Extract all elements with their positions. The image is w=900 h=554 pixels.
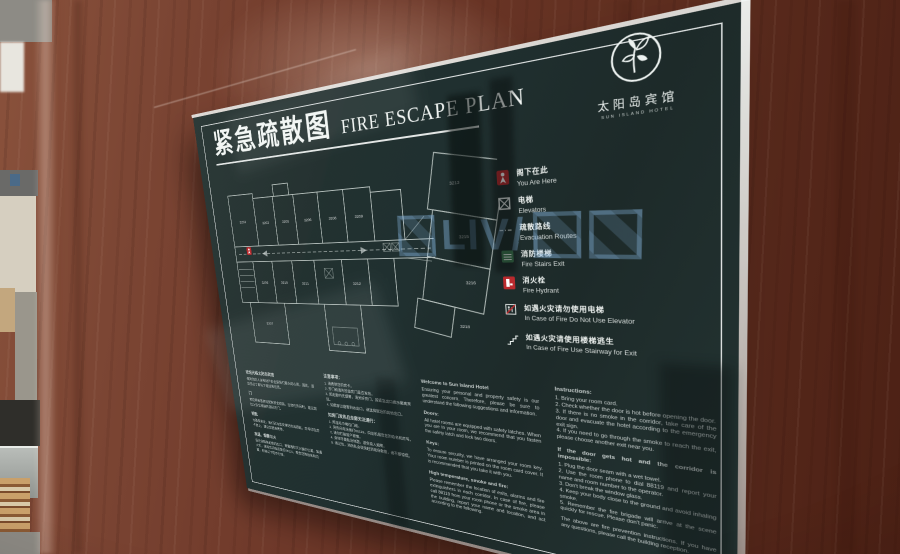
- room-label: 3213: [449, 179, 460, 186]
- room-label: 3203: [262, 220, 269, 225]
- info-column-chinese-1: 欢迎光临太阳岛宾馆保障您的人身和财产安全是我们最大的心愿，因此，请您务必了解以下…: [246, 371, 325, 472]
- room-label: 3209: [354, 213, 363, 219]
- title-english: FIRE ESCAPE PLAN: [340, 83, 526, 139]
- fire-hydrant-icon: [502, 276, 516, 289]
- hotel-logo: 太阳岛宾馆 SUN ISLAND HOTEL: [584, 18, 690, 122]
- room-label: 3206: [304, 217, 312, 223]
- elevator-icon: [498, 197, 512, 210]
- legend-item-you-are-here: 阁下在此You Are Here: [496, 164, 557, 190]
- room-label: 3215: [459, 234, 470, 240]
- room-label: 3211: [302, 281, 310, 286]
- evacuation-route-icon: [499, 224, 513, 237]
- legend: 阁下在此You Are Here 电梯Elevators 疏散路线Evacuat…: [495, 139, 719, 164]
- room-label: 3201: [239, 220, 246, 225]
- legend-item-use-stairway: 如遇火灾请使用楼梯逃生In Case of Fire Use Stairway …: [506, 332, 637, 358]
- legend-item-evacuation-routes: 疏散路线Evacuation Routes: [499, 219, 577, 242]
- wood-streak: [836, 0, 856, 554]
- room-label: 3207: [266, 321, 273, 326]
- legend-label-zh: 疏散路线: [519, 219, 576, 232]
- room-label: 3216: [466, 280, 477, 286]
- legend-label-zh: 消火栓: [522, 275, 559, 285]
- info-column-chinese-2: 注意事项： 1. 请携带您的房卡。 2. 开门前请先检查房门是否发热。 3. 如…: [323, 374, 419, 466]
- you-are-here-marker: [246, 247, 252, 255]
- stairway-icon: [506, 333, 519, 346]
- legend-label-en: Elevators: [518, 206, 546, 215]
- glass-edge-right: [737, 0, 751, 554]
- floor-plan: 3201 3203 3205 3206 3208 3209 3202 3210 …: [216, 138, 510, 370]
- room-label: 3208: [328, 215, 337, 221]
- legend-label-en: Evacuation Routes: [520, 232, 577, 242]
- watermark-glyph-block: [589, 209, 642, 259]
- legend-label-en: You Are Here: [517, 176, 557, 187]
- fire-stairs-icon: [501, 250, 515, 262]
- door-edge-highlight: [34, 0, 60, 554]
- legend-item-fire-hydrant: 消火栓Fire Hydrant: [502, 275, 559, 294]
- photo-fire-escape-sign-on-wood-wall: 紧急疏散图 FIRE ESCAPE PLAN 太阳岛宾馆 SUN ISLAND …: [0, 0, 900, 554]
- wood-seam: [74, 0, 82, 554]
- cardboard-box: [0, 288, 15, 332]
- legend-label-en: Fire Hydrant: [523, 287, 559, 294]
- evacuation-route-line: [239, 248, 431, 254]
- blue-object: [10, 174, 20, 186]
- room-label: 3210: [281, 280, 289, 285]
- bright-wall-spot: [0, 42, 24, 92]
- legend-item-no-elevator: 如遇火灾请勿使用电梯In Case of Fire Do Not Use Ele…: [504, 303, 635, 325]
- room-label: 3205: [282, 219, 290, 224]
- plywood-stack: [0, 478, 30, 532]
- cream-wall: [0, 196, 36, 292]
- room-label: 3218: [460, 324, 470, 330]
- legend-item-elevators: 电梯Elevators: [497, 193, 546, 216]
- info-column-english-2: Instructions: 1. Bring your room card. 2…: [554, 387, 716, 554]
- you-are-here-icon: [496, 170, 510, 186]
- hotel-logo-icon: [607, 23, 666, 89]
- no-elevator-icon: [504, 304, 517, 315]
- room-label: 3212: [353, 281, 362, 286]
- legend-label-en: In Case of Fire Do Not Use Elevator: [524, 315, 634, 326]
- legend-label-zh: 电梯: [518, 193, 546, 206]
- legend-label-en: Fire Stairs Exit: [521, 260, 564, 268]
- legend-item-fire-stairs: 消防楼梯Fire Stairs Exit: [501, 248, 565, 268]
- room-label: 3202: [261, 280, 268, 285]
- info-column-english-1: Welcome to Sun Island HotelEnsuring your…: [421, 379, 547, 535]
- legend-label-zh: 消防楼梯: [521, 248, 565, 259]
